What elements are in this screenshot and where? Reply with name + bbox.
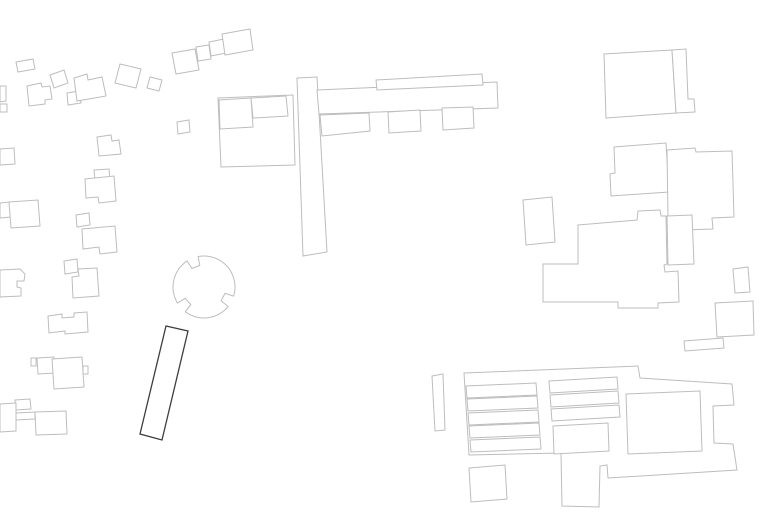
building-outline-d5 [388,110,421,133]
building-outline-f5 [543,210,679,308]
building-outline-h3s5 [470,437,541,452]
building-outline-c4 [52,357,84,389]
building-outline-a14 [177,120,190,134]
building-outline-c5 [83,366,88,374]
building-outline-a7 [0,104,7,112]
building-outline-c8 [16,412,35,420]
site-plan-viewport [0,0,780,520]
building-outline-d6 [442,107,474,130]
building-outline-a13 [222,29,253,55]
building-outline-h3s3 [468,410,539,425]
building-outline-a3 [27,83,52,106]
building-outline-d9 [251,96,288,118]
circular-building-outline [173,256,235,318]
building-outline-a5 [74,74,106,101]
building-outline-h3s1 [466,383,537,398]
building-outline-a10 [172,49,199,74]
building-outline-a8 [115,64,141,88]
building-outline-a9 [147,77,162,91]
building-outline-f1 [610,143,669,196]
site-plan-canvas [0,0,780,520]
building-outline-b9 [0,269,25,297]
building-outline-d8 [219,98,253,129]
building-outline-h6 [469,465,507,502]
building-outline-h3s2 [467,396,538,411]
building-outline-e2 [672,49,695,113]
building-outline-h1 [432,374,445,431]
building-outline-f7 [684,338,724,351]
building-outline-c2 [31,358,36,366]
building-outline-a16 [0,148,15,165]
building-outline-c1 [48,312,88,334]
building-outline-a15 [97,135,121,156]
building-outline-b6 [82,226,117,254]
building-outline-b4 [9,200,40,228]
building-outline-f4 [523,197,555,245]
selected-building-outline [140,326,188,440]
building-outline-h5 [626,391,702,454]
building-outline-f6 [715,301,754,337]
building-outline-a1 [16,59,35,72]
building-outline-b5 [76,213,90,227]
building-outline-h4 [553,423,609,454]
building-outline-d4 [320,113,370,136]
building-outline-c6 [15,399,31,410]
building-outline-f8 [733,267,750,293]
building-outline-c9 [35,411,67,435]
building-outline-a6 [0,86,6,102]
building-outline-a2 [50,70,68,88]
building-outline-e1 [604,50,676,118]
building-outline-c7 [0,403,16,432]
building-outline-b7 [64,259,78,274]
building-outline-h3s4 [469,423,540,438]
building-outline-f3 [667,215,694,265]
building-outline-b2 [85,176,116,203]
building-outline-a11 [196,45,211,61]
